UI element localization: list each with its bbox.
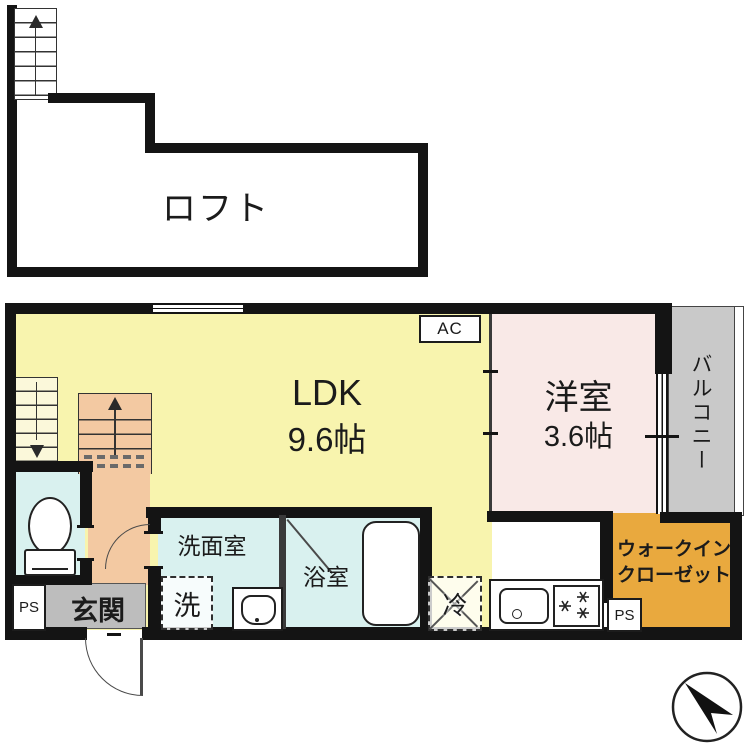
loft-wall-a bbox=[48, 93, 155, 103]
hall-washroom-wall-bottom bbox=[148, 568, 161, 627]
ps-left-label: PS bbox=[19, 599, 39, 616]
entrance-door-swing-icon bbox=[85, 638, 143, 696]
kitchen-sink-icon bbox=[499, 588, 549, 624]
entrance-door-leaf bbox=[140, 638, 143, 695]
washer-label: 洗 bbox=[174, 584, 201, 623]
bathtub-icon bbox=[362, 521, 420, 626]
toilet-right-wall-top bbox=[80, 461, 92, 527]
entrance-door-tick bbox=[107, 633, 121, 636]
washroom-label: 洗面室 bbox=[162, 527, 262, 561]
partition-tick bbox=[483, 370, 498, 373]
balcony-window-icon bbox=[656, 374, 668, 514]
loft-bottom-wall bbox=[7, 267, 428, 277]
ac-label: AC bbox=[437, 319, 463, 339]
toilet-icon bbox=[28, 497, 72, 555]
balcony-rail bbox=[734, 306, 744, 516]
kitchen-counter bbox=[489, 579, 604, 631]
stairs-up-arrow-icon bbox=[29, 15, 43, 28]
stairs-up-arrow-icon bbox=[108, 397, 122, 410]
bedroom-size-label: 3.6帖 bbox=[500, 413, 657, 455]
bedroom-label: 洋室 bbox=[500, 370, 657, 419]
fridge-label: 冷 bbox=[442, 586, 467, 622]
loft-stairs-up-icon bbox=[14, 8, 57, 100]
loft-wall-c bbox=[145, 143, 428, 153]
loft-ladder-dash bbox=[84, 455, 144, 459]
entrance-label: 玄関 bbox=[54, 589, 142, 628]
toilet-tank-icon bbox=[24, 549, 76, 576]
stairs-center-line bbox=[114, 410, 116, 456]
ldk-label: LDK bbox=[247, 372, 407, 414]
ldk-window-icon bbox=[153, 303, 243, 314]
ldk-stairs-down-icon bbox=[15, 377, 58, 463]
washstand-icon bbox=[232, 587, 283, 631]
partition-tick bbox=[483, 432, 498, 435]
pipe-space-right-box: PS bbox=[607, 598, 642, 632]
loft-right-wall bbox=[418, 143, 428, 277]
walk-in-closet-label: ウォークイン クローゼット bbox=[615, 537, 733, 589]
ldk-size-label: 9.6帖 bbox=[247, 413, 407, 461]
bedroom-bottom-wall bbox=[487, 511, 605, 522]
stove-icon bbox=[553, 585, 600, 627]
floor-plan: ロフト bbox=[0, 0, 750, 750]
main-top-wall bbox=[5, 303, 672, 314]
fridge-space-icon: 冷 bbox=[428, 576, 482, 631]
ac-unit-box: AC bbox=[419, 315, 481, 343]
closet-label-line1: ウォークイン bbox=[615, 537, 733, 563]
door-jamb-tick bbox=[77, 525, 94, 528]
loft-label: ロフト bbox=[146, 181, 286, 230]
stove-burners bbox=[555, 587, 594, 621]
stairs-center-line bbox=[35, 23, 37, 95]
bedroom-right-wall bbox=[655, 306, 672, 374]
stairs-down-arrow-icon bbox=[30, 445, 44, 458]
north-arrow-icon bbox=[670, 670, 744, 744]
closet-label-line2: クローゼット bbox=[615, 563, 733, 589]
door-jamb-tick bbox=[77, 558, 94, 561]
pipe-space-left-box: PS bbox=[12, 584, 46, 631]
washer-space-icon: 洗 bbox=[161, 576, 213, 630]
wet-area-top-wall bbox=[146, 507, 432, 518]
washstand-drain bbox=[255, 618, 259, 622]
ps-right-label: PS bbox=[614, 607, 634, 624]
balcony-label: バルコニー bbox=[687, 340, 715, 485]
bathroom-label: 浴室 bbox=[292, 558, 360, 592]
loft-ladder-dash bbox=[84, 464, 144, 468]
kitchen-sink-drain bbox=[512, 609, 522, 619]
ldk-bedroom-partition bbox=[489, 313, 492, 511]
toilet-tank-line bbox=[32, 568, 68, 570]
stairs-center-line bbox=[36, 382, 38, 440]
